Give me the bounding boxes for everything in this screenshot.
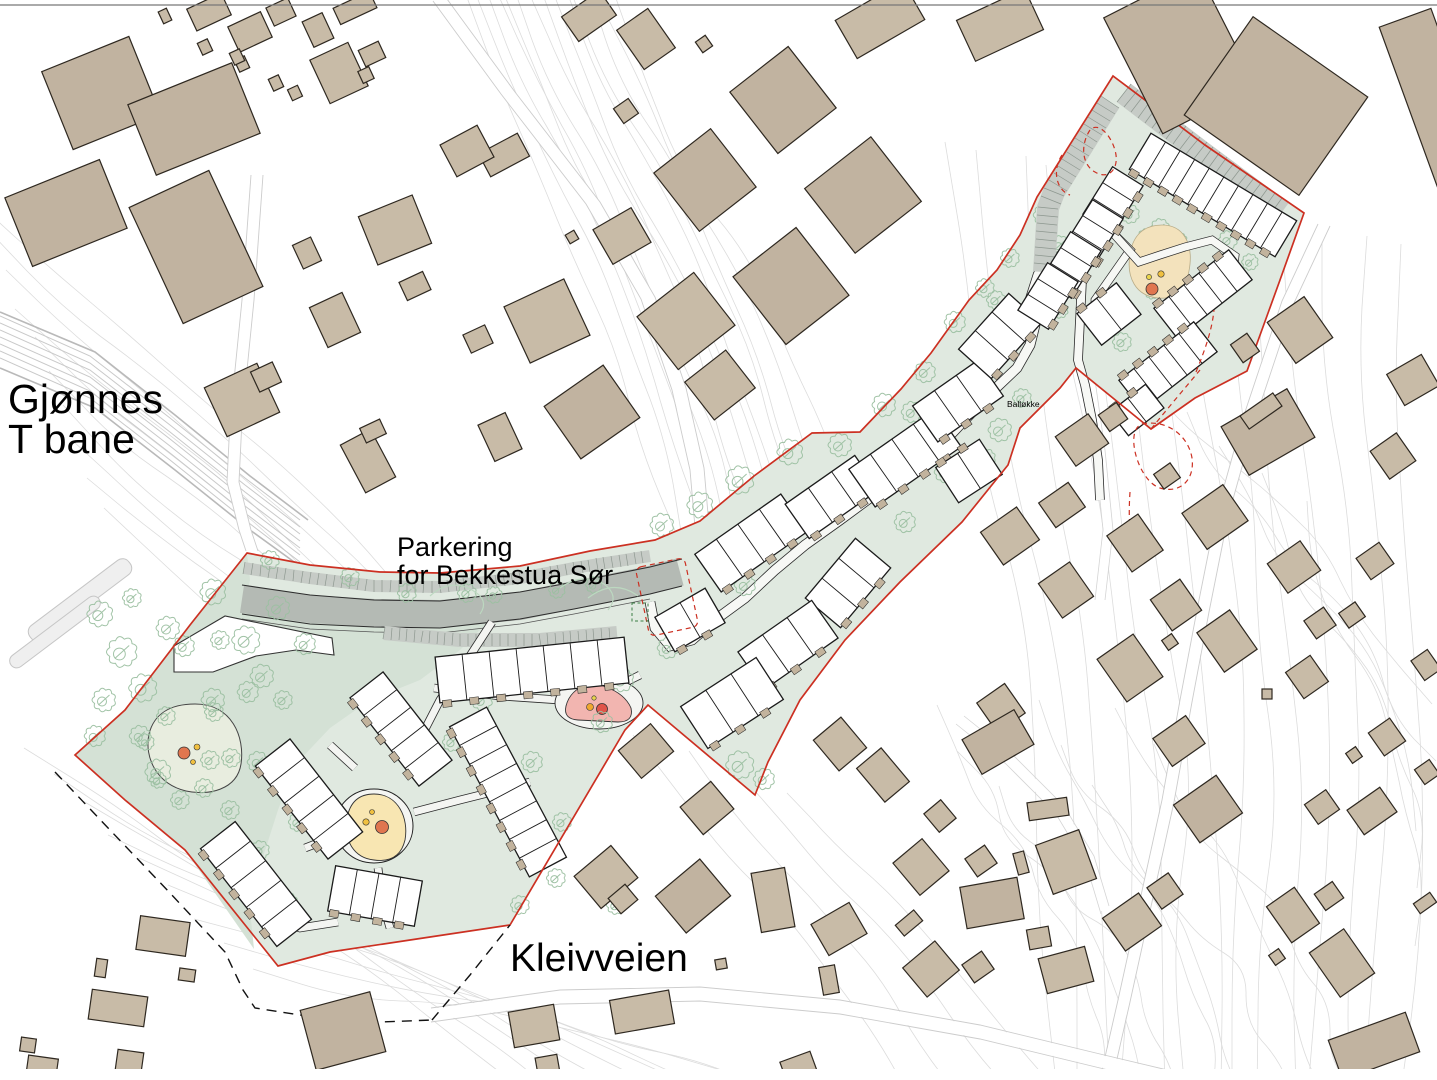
svg-text:Kleivveien: Kleivveien bbox=[510, 937, 688, 980]
svg-text:T bane: T bane bbox=[8, 416, 135, 462]
svg-text:Balløkke: Balløkke bbox=[1007, 399, 1040, 409]
svg-text:for Bekkestua Sør: for Bekkestua Sør bbox=[397, 560, 613, 590]
svg-text:Parkering: Parkering bbox=[397, 532, 513, 562]
